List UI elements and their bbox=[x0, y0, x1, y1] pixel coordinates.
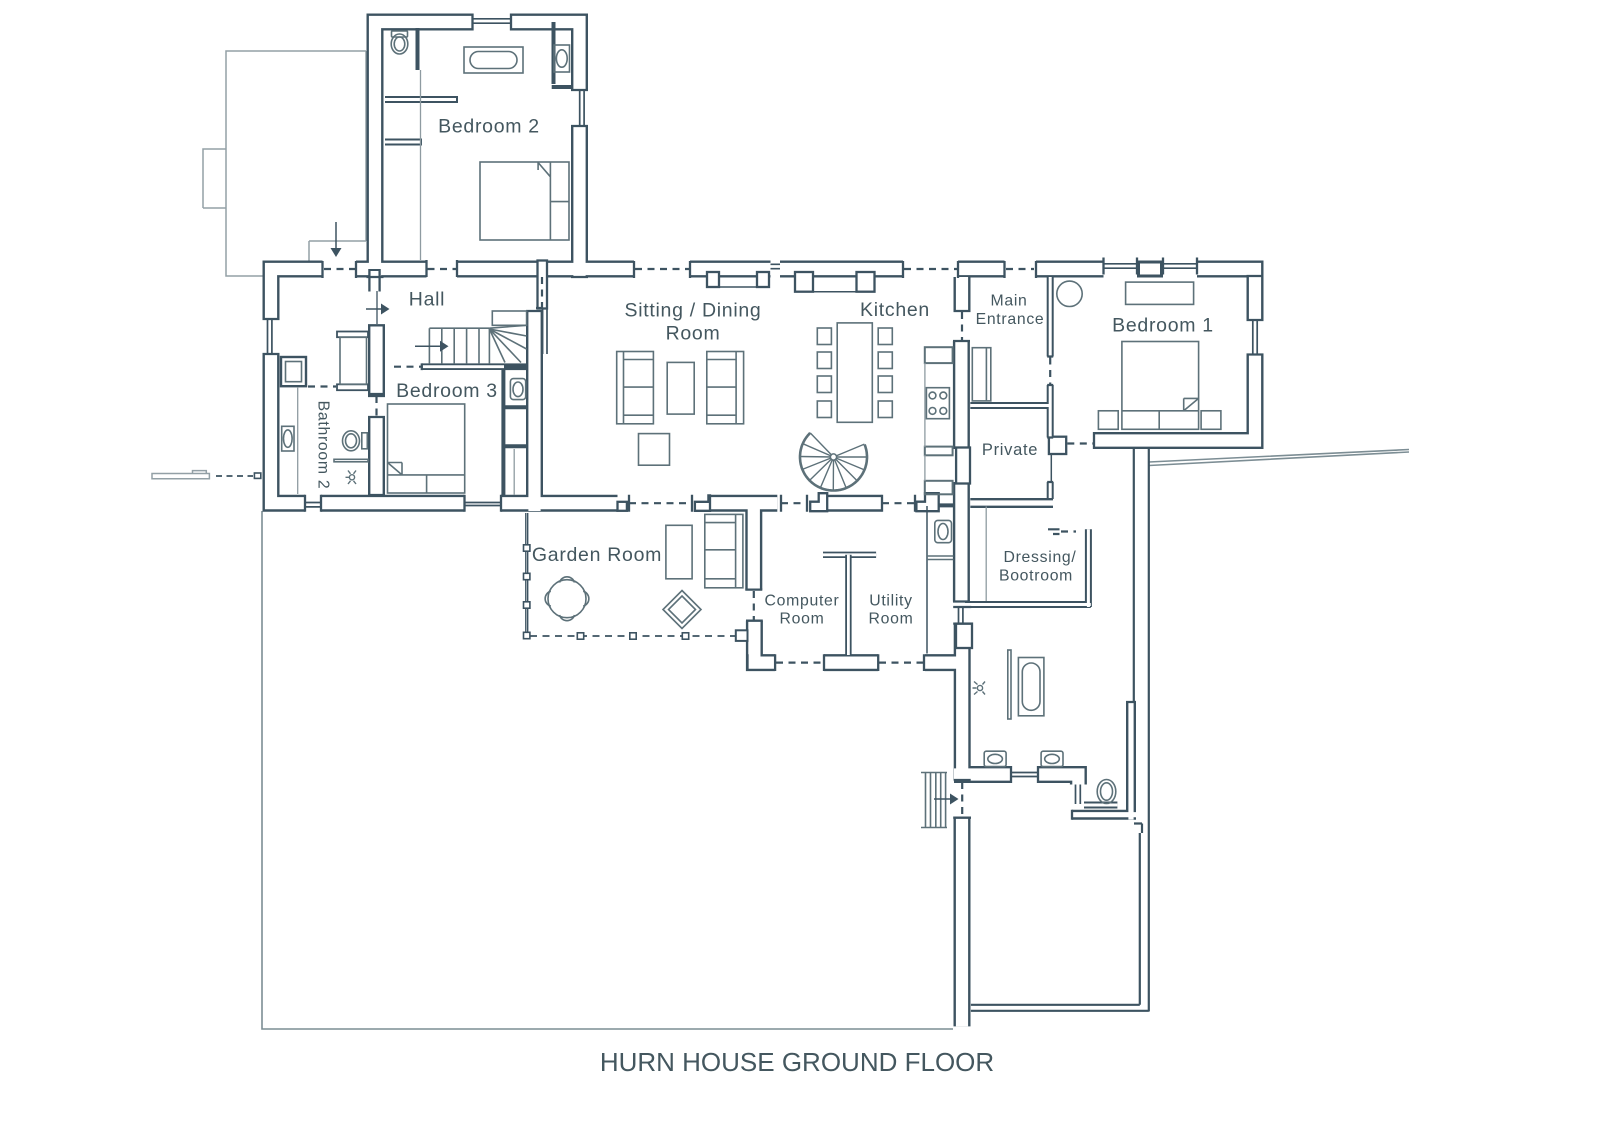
svg-text:Bathroom 2: Bathroom 2 bbox=[315, 401, 332, 490]
svg-text:Kitchen: Kitchen bbox=[860, 299, 930, 321]
svg-text:Private: Private bbox=[982, 441, 1038, 459]
svg-text:Room: Room bbox=[666, 323, 721, 345]
svg-text:Bedroom 3: Bedroom 3 bbox=[396, 380, 498, 402]
svg-text:Room: Room bbox=[869, 611, 914, 628]
svg-text:Bootroom: Bootroom bbox=[999, 568, 1073, 585]
svg-text:Bedroom 2: Bedroom 2 bbox=[438, 116, 540, 138]
svg-text:Main: Main bbox=[990, 293, 1027, 310]
svg-text:Bedroom 1: Bedroom 1 bbox=[1112, 315, 1214, 337]
svg-text:Hall: Hall bbox=[409, 289, 445, 311]
svg-text:Dressing/: Dressing/ bbox=[1003, 549, 1076, 566]
svg-text:Garden Room: Garden Room bbox=[532, 544, 662, 566]
svg-text:Entrance: Entrance bbox=[976, 311, 1045, 328]
svg-text:Utility: Utility bbox=[869, 593, 913, 610]
svg-text:Sitting / Dining: Sitting / Dining bbox=[625, 300, 762, 322]
svg-text:Computer: Computer bbox=[765, 593, 840, 610]
svg-text:HURN HOUSE GROUND FLOOR: HURN HOUSE GROUND FLOOR bbox=[600, 1047, 994, 1077]
svg-text:Room: Room bbox=[780, 611, 825, 628]
